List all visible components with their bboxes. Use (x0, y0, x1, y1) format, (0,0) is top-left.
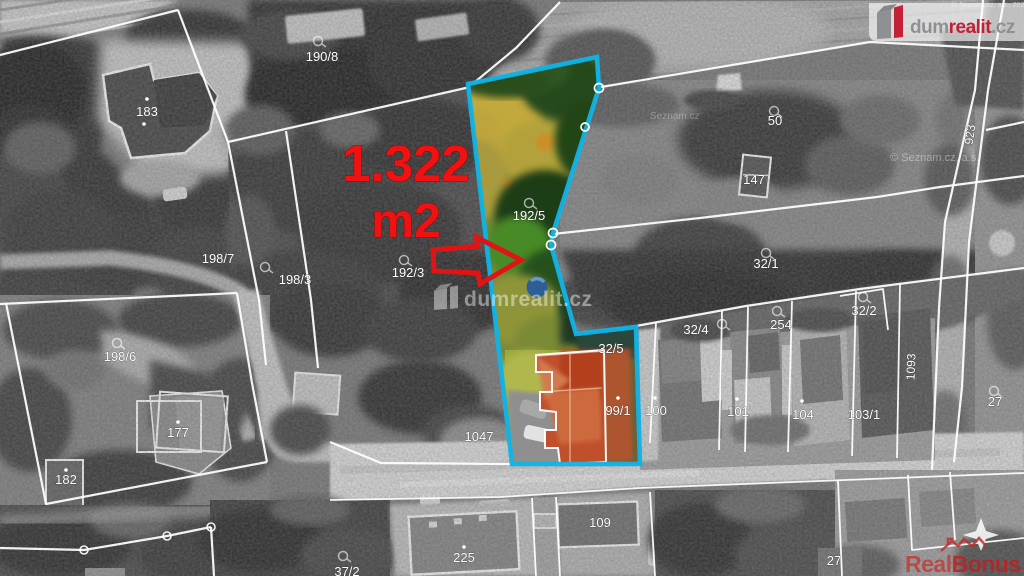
svg-text:RealBonus.cz: RealBonus.cz (905, 551, 1024, 576)
svg-text:923: 923 (962, 123, 978, 145)
svg-text:37/2: 37/2 (334, 564, 359, 576)
svg-text:182: 182 (55, 472, 77, 487)
svg-text:dumrealit.cz: dumrealit.cz (910, 17, 1015, 38)
svg-text:1047: 1047 (465, 429, 494, 444)
svg-text:32/1: 32/1 (753, 256, 778, 271)
svg-text:254: 254 (770, 317, 792, 332)
svg-text:27: 27 (827, 553, 841, 568)
svg-text:99/1: 99/1 (605, 403, 630, 418)
svg-text:198/7: 198/7 (202, 251, 235, 266)
svg-text:183: 183 (136, 104, 158, 119)
svg-text:198/3: 198/3 (279, 272, 312, 287)
svg-text:198/6: 198/6 (104, 349, 137, 364)
svg-text:192/5: 192/5 (513, 208, 546, 223)
svg-text:dumrealit.cz: dumrealit.cz (464, 288, 593, 311)
svg-text:© Seznam.cz, a.s.: © Seznam.cz, a.s. (890, 152, 979, 164)
svg-text:m2: m2 (371, 195, 440, 248)
svg-text:100: 100 (645, 403, 667, 418)
svg-text:101: 101 (727, 404, 749, 419)
svg-text:147: 147 (743, 172, 765, 187)
svg-text:32/2: 32/2 (851, 303, 876, 318)
svg-text:27: 27 (988, 394, 1002, 409)
svg-text:Seznam.cz: Seznam.cz (650, 111, 699, 122)
svg-text:225: 225 (453, 550, 475, 565)
svg-text:104: 104 (792, 407, 814, 422)
svg-text:109: 109 (589, 515, 611, 530)
svg-text:190/8: 190/8 (306, 49, 339, 64)
svg-text:32/5: 32/5 (598, 341, 623, 356)
svg-text:50: 50 (768, 113, 782, 128)
svg-text:103/1: 103/1 (848, 407, 881, 422)
svg-text:192/3: 192/3 (392, 265, 425, 280)
svg-text:1.322: 1.322 (342, 135, 470, 192)
svg-text:177: 177 (167, 425, 189, 440)
svg-text:32/4: 32/4 (683, 322, 708, 337)
svg-text:1093: 1093 (904, 353, 919, 380)
